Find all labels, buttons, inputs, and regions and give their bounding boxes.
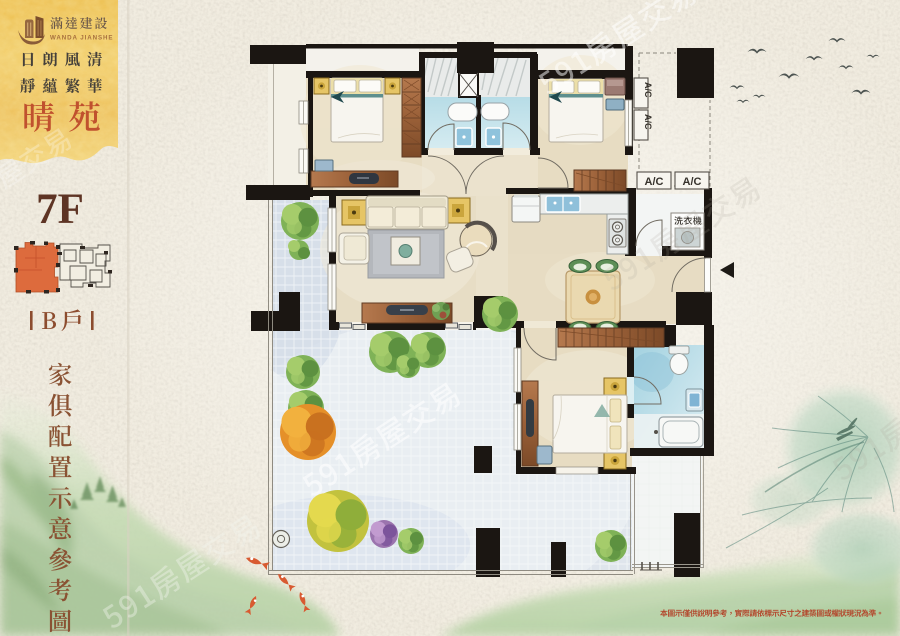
svg-text:7F: 7F	[36, 186, 84, 233]
svg-text:A/C: A/C	[643, 82, 653, 98]
svg-text:A/C: A/C	[645, 176, 664, 188]
svg-text:A/C: A/C	[643, 114, 653, 130]
svg-text:A/C: A/C	[683, 176, 702, 188]
svg-text:WANDA JIANSHE: WANDA JIANSHE	[50, 35, 113, 42]
